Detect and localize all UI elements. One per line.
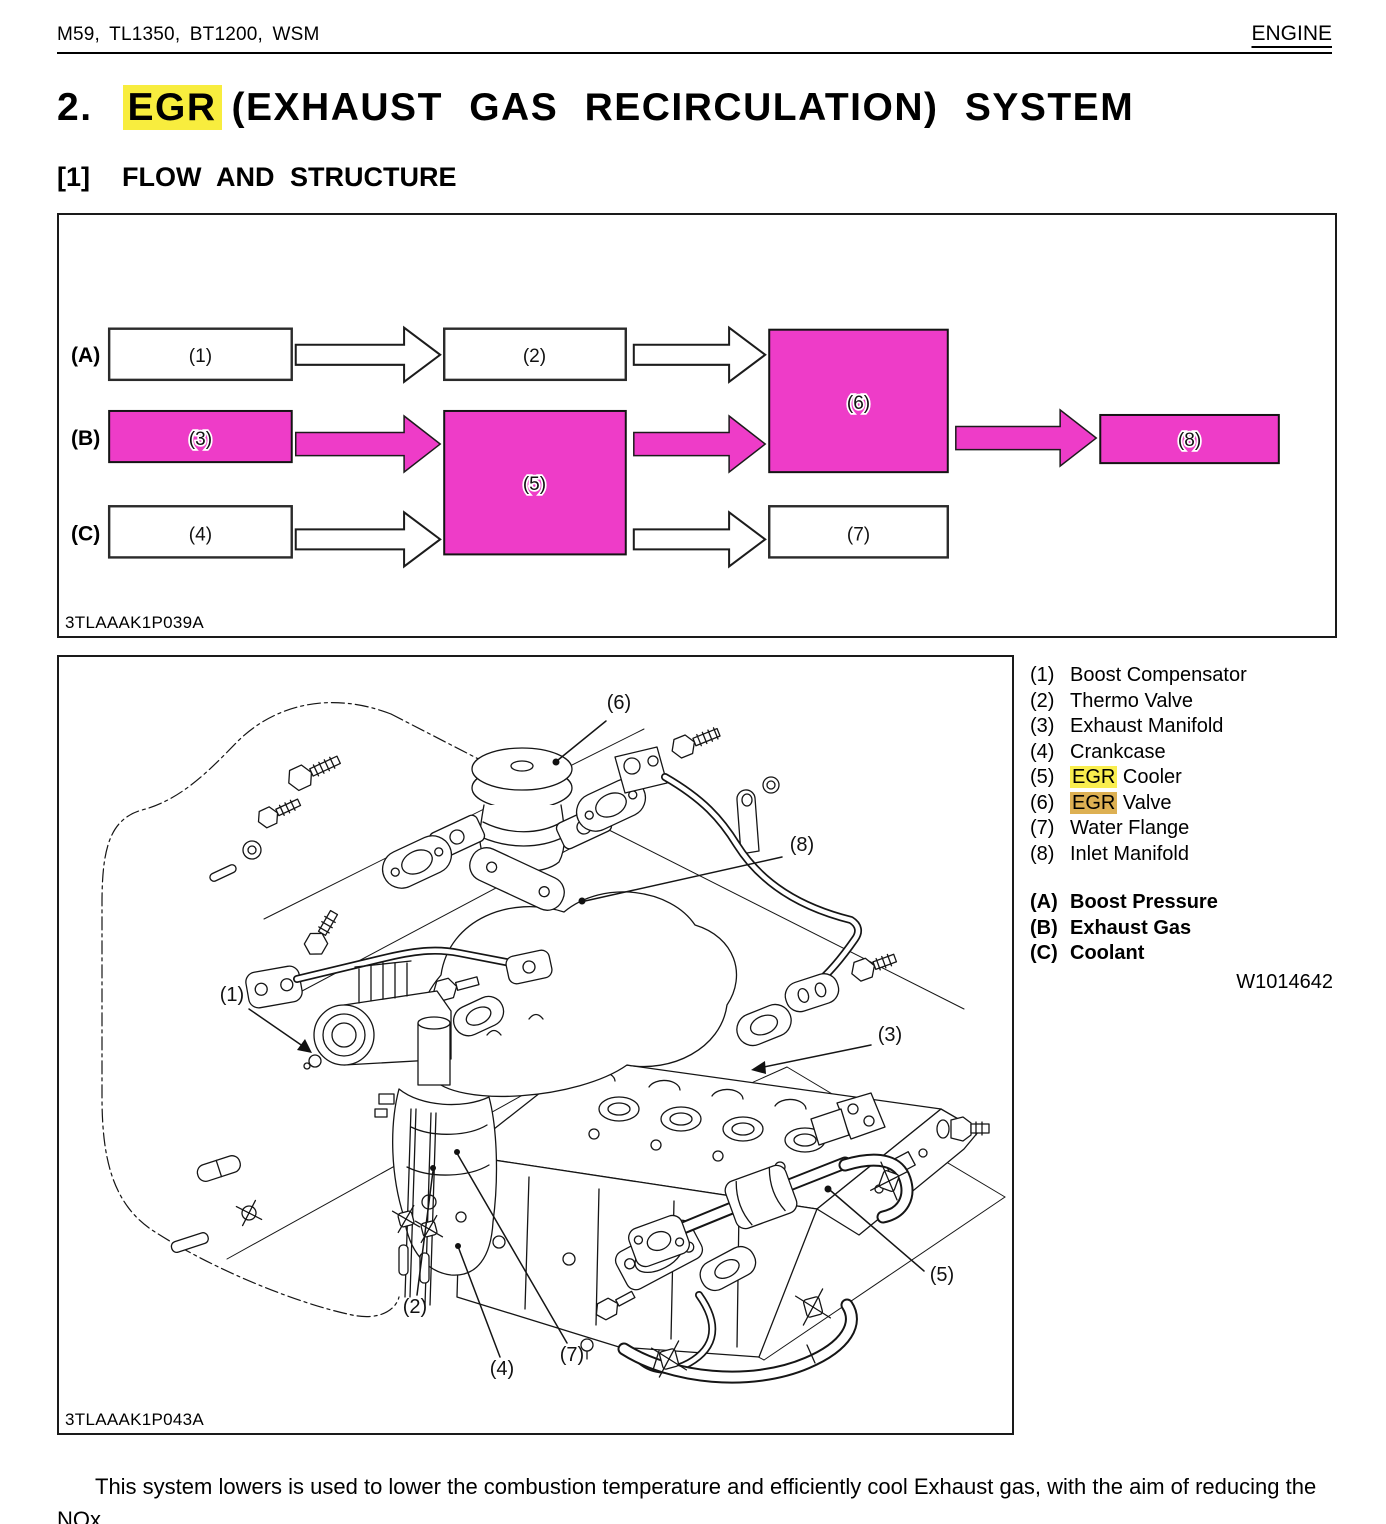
manual-page: M59, TL1350, BT1200, WSM ENGINE 2.EGR(EX… xyxy=(0,0,1386,1524)
flow-row-label-c: (C) xyxy=(71,522,100,545)
flow-box-1-label: (1) xyxy=(189,346,212,367)
flow-box-5-label: (5) xyxy=(523,474,546,495)
flow-box-8-label: (8) xyxy=(1178,430,1201,451)
flow-row-label-b: (B) xyxy=(71,427,100,450)
reference-code: W1014642 xyxy=(1030,970,1333,996)
legend-item: (7)Water Flange xyxy=(1030,816,1333,842)
callout-6: (6) xyxy=(607,692,631,714)
page-header: M59, TL1350, BT1200, WSM ENGINE xyxy=(57,22,1332,54)
plug xyxy=(243,841,261,859)
legend-item: (5)EGR Cooler xyxy=(1030,765,1333,791)
engine-exploded-drawing: (1) (2) (3) (4) (5) (6) (7) xyxy=(59,657,1012,1433)
legend-item: (1)Boost Compensator xyxy=(1030,663,1333,689)
callout-7: (7) xyxy=(560,1344,584,1366)
search-highlight-title: EGR xyxy=(123,85,222,130)
arrow-b1 xyxy=(296,416,440,472)
search-highlight: EGR xyxy=(1070,766,1117,788)
bolt xyxy=(668,723,722,760)
engine-figure: (1) (2) (3) (4) (5) (6) (7) xyxy=(57,655,1014,1435)
gasket xyxy=(732,1000,796,1051)
section-index: [1] xyxy=(57,162,90,192)
legend-item: (4)Crankcase xyxy=(1030,740,1333,766)
bolt xyxy=(284,750,343,793)
flow-box-4-label: (4) xyxy=(189,524,212,545)
model-codes: M59, TL1350, BT1200, WSM xyxy=(57,24,320,46)
title-number: 2. xyxy=(57,86,93,129)
flow-figure-code: 3TLAAAK1P039A xyxy=(65,613,204,633)
flow-key-list: (A)Boost Pressure (B)Exhaust Gas (C)Cool… xyxy=(1030,890,1333,967)
legend-item: (3)Exhaust Manifold xyxy=(1030,714,1333,740)
flow-row-label-a: (A) xyxy=(71,344,100,367)
flow-box-6-label: (6) xyxy=(847,393,870,414)
arrow-c1 xyxy=(296,512,440,566)
flow-key-item: (B)Exhaust Gas xyxy=(1030,916,1333,942)
title-rest: (EXHAUST GAS RECIRCULATION) SYSTEM xyxy=(232,86,1135,129)
chapter-title: ENGINE xyxy=(1251,22,1332,46)
arrow-a2 xyxy=(634,328,765,382)
flow-box-2-label: (2) xyxy=(523,346,546,367)
page-title: 2.EGR(EXHAUST GAS RECIRCULATION) SYSTEM xyxy=(57,86,1134,130)
parts-legend: (1)Boost Compensator (2)Thermo Valve (3)… xyxy=(1030,663,1333,995)
callout-8: (8) xyxy=(790,834,814,856)
flow-box-3-label: (3) xyxy=(189,429,212,450)
small-parts-left xyxy=(170,1154,262,1254)
legend-item: (2)Thermo Valve xyxy=(1030,689,1333,715)
flow-key-item: (A)Boost Pressure xyxy=(1030,890,1333,916)
bolt xyxy=(937,1117,989,1141)
flow-diagram: (A) (B) (C) (1) (2) (3) xyxy=(59,215,1335,636)
search-highlight-active: EGR xyxy=(1070,792,1117,814)
legend-item: (8)Inlet Manifold xyxy=(1030,842,1333,868)
callout-3: (3) xyxy=(878,1024,902,1046)
arrow-c2 xyxy=(634,512,765,566)
egr-valve-assembly xyxy=(209,729,652,919)
legend-item: (6)EGR Valve xyxy=(1030,791,1333,817)
arrow-b3 xyxy=(956,410,1096,466)
bolt xyxy=(763,777,779,793)
flow-diagram-figure: (A) (B) (C) (1) (2) (3) xyxy=(57,213,1337,638)
callout-4: (4) xyxy=(490,1358,514,1380)
bolt xyxy=(301,908,342,960)
arrow-a1 xyxy=(296,328,440,382)
callout-1: (1) xyxy=(220,984,244,1006)
section-heading: [1]FLOW AND STRUCTURE xyxy=(57,162,456,193)
callout-2: (2) xyxy=(403,1296,427,1318)
head-cover xyxy=(418,892,736,1097)
bolt xyxy=(255,795,303,830)
flow-key-item: (C)Coolant xyxy=(1030,941,1333,967)
section-label: FLOW AND STRUCTURE xyxy=(122,162,456,192)
bolt xyxy=(848,949,898,984)
body-paragraph: This system lowers is used to lower the … xyxy=(57,1470,1334,1524)
callout-5: (5) xyxy=(930,1264,954,1286)
engine-figure-code: 3TLAAAK1P043A xyxy=(65,1410,204,1430)
flow-box-7-label: (7) xyxy=(847,524,870,545)
arrow-b2 xyxy=(634,416,765,472)
